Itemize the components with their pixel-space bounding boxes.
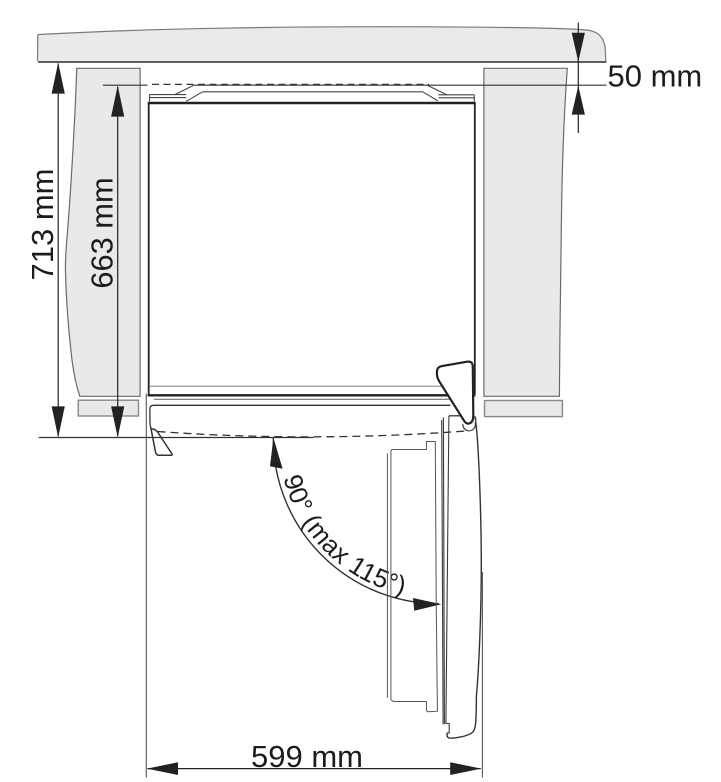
svg-text:599 mm: 599 mm [251,739,363,774]
svg-text:663 mm: 663 mm [85,177,120,288]
svg-text:713 mm: 713 mm [25,169,60,281]
svg-text:50 mm: 50 mm [608,59,703,94]
